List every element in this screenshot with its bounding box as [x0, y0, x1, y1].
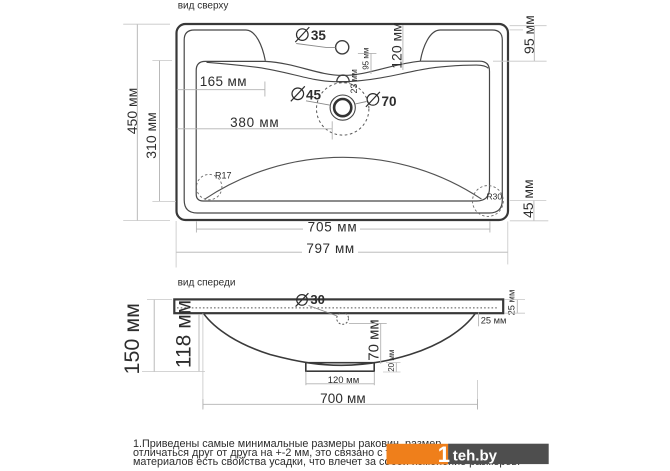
svg-text:310 мм: 310 мм [143, 112, 159, 159]
svg-text:700 мм: 700 мм [320, 391, 366, 406]
svg-text:вид сверху: вид сверху [178, 1, 229, 12]
svg-text:23 мм: 23 мм [349, 69, 359, 93]
svg-text:teh.by: teh.by [453, 447, 498, 464]
svg-text:30: 30 [310, 292, 324, 307]
svg-text:70: 70 [382, 94, 397, 109]
svg-text:20 мм: 20 мм [387, 350, 396, 372]
svg-text:R30: R30 [487, 191, 503, 201]
svg-text:25 мм: 25 мм [506, 290, 516, 316]
svg-text:797 мм: 797 мм [306, 241, 354, 256]
svg-text:вид спереди: вид спереди [178, 277, 236, 288]
svg-text:380 мм: 380 мм [230, 115, 279, 130]
svg-text:705 мм: 705 мм [308, 220, 357, 235]
svg-text:150 мм: 150 мм [120, 303, 144, 374]
svg-text:120 мм: 120 мм [389, 22, 405, 69]
svg-text:1: 1 [438, 442, 450, 467]
svg-text:R17: R17 [215, 171, 232, 181]
svg-text:25 мм: 25 мм [481, 315, 507, 325]
svg-text:45: 45 [306, 88, 322, 103]
svg-text:35: 35 [311, 28, 327, 43]
svg-text:118 мм: 118 мм [172, 300, 195, 368]
svg-text:165 мм: 165 мм [200, 74, 247, 89]
svg-text:70 мм: 70 мм [365, 319, 382, 360]
svg-text:95 мм: 95 мм [361, 48, 370, 70]
